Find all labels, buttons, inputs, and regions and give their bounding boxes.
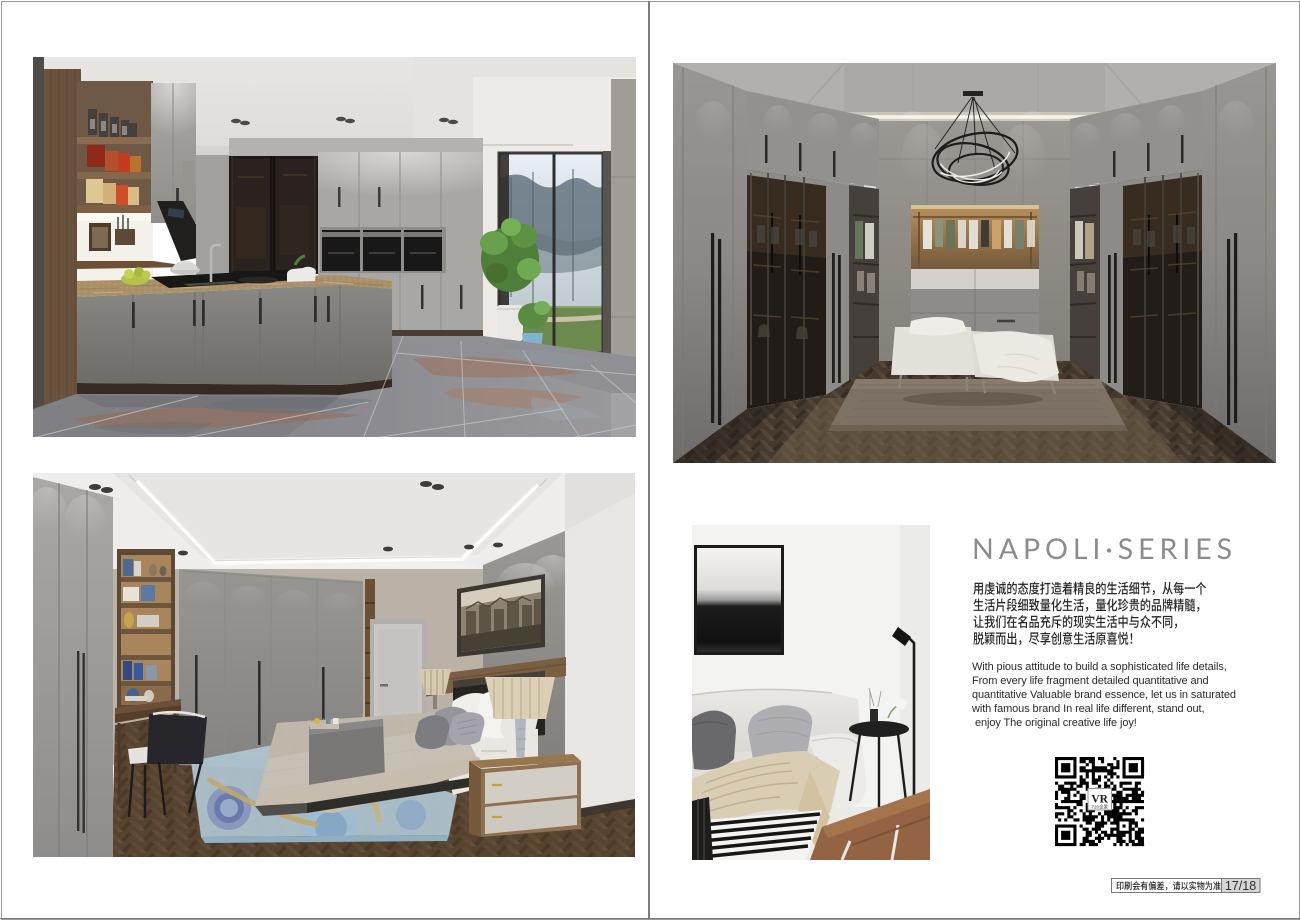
svg-text:720全景: 720全景	[1091, 804, 1108, 811]
svg-text:17/18: 17/18	[1225, 879, 1256, 893]
